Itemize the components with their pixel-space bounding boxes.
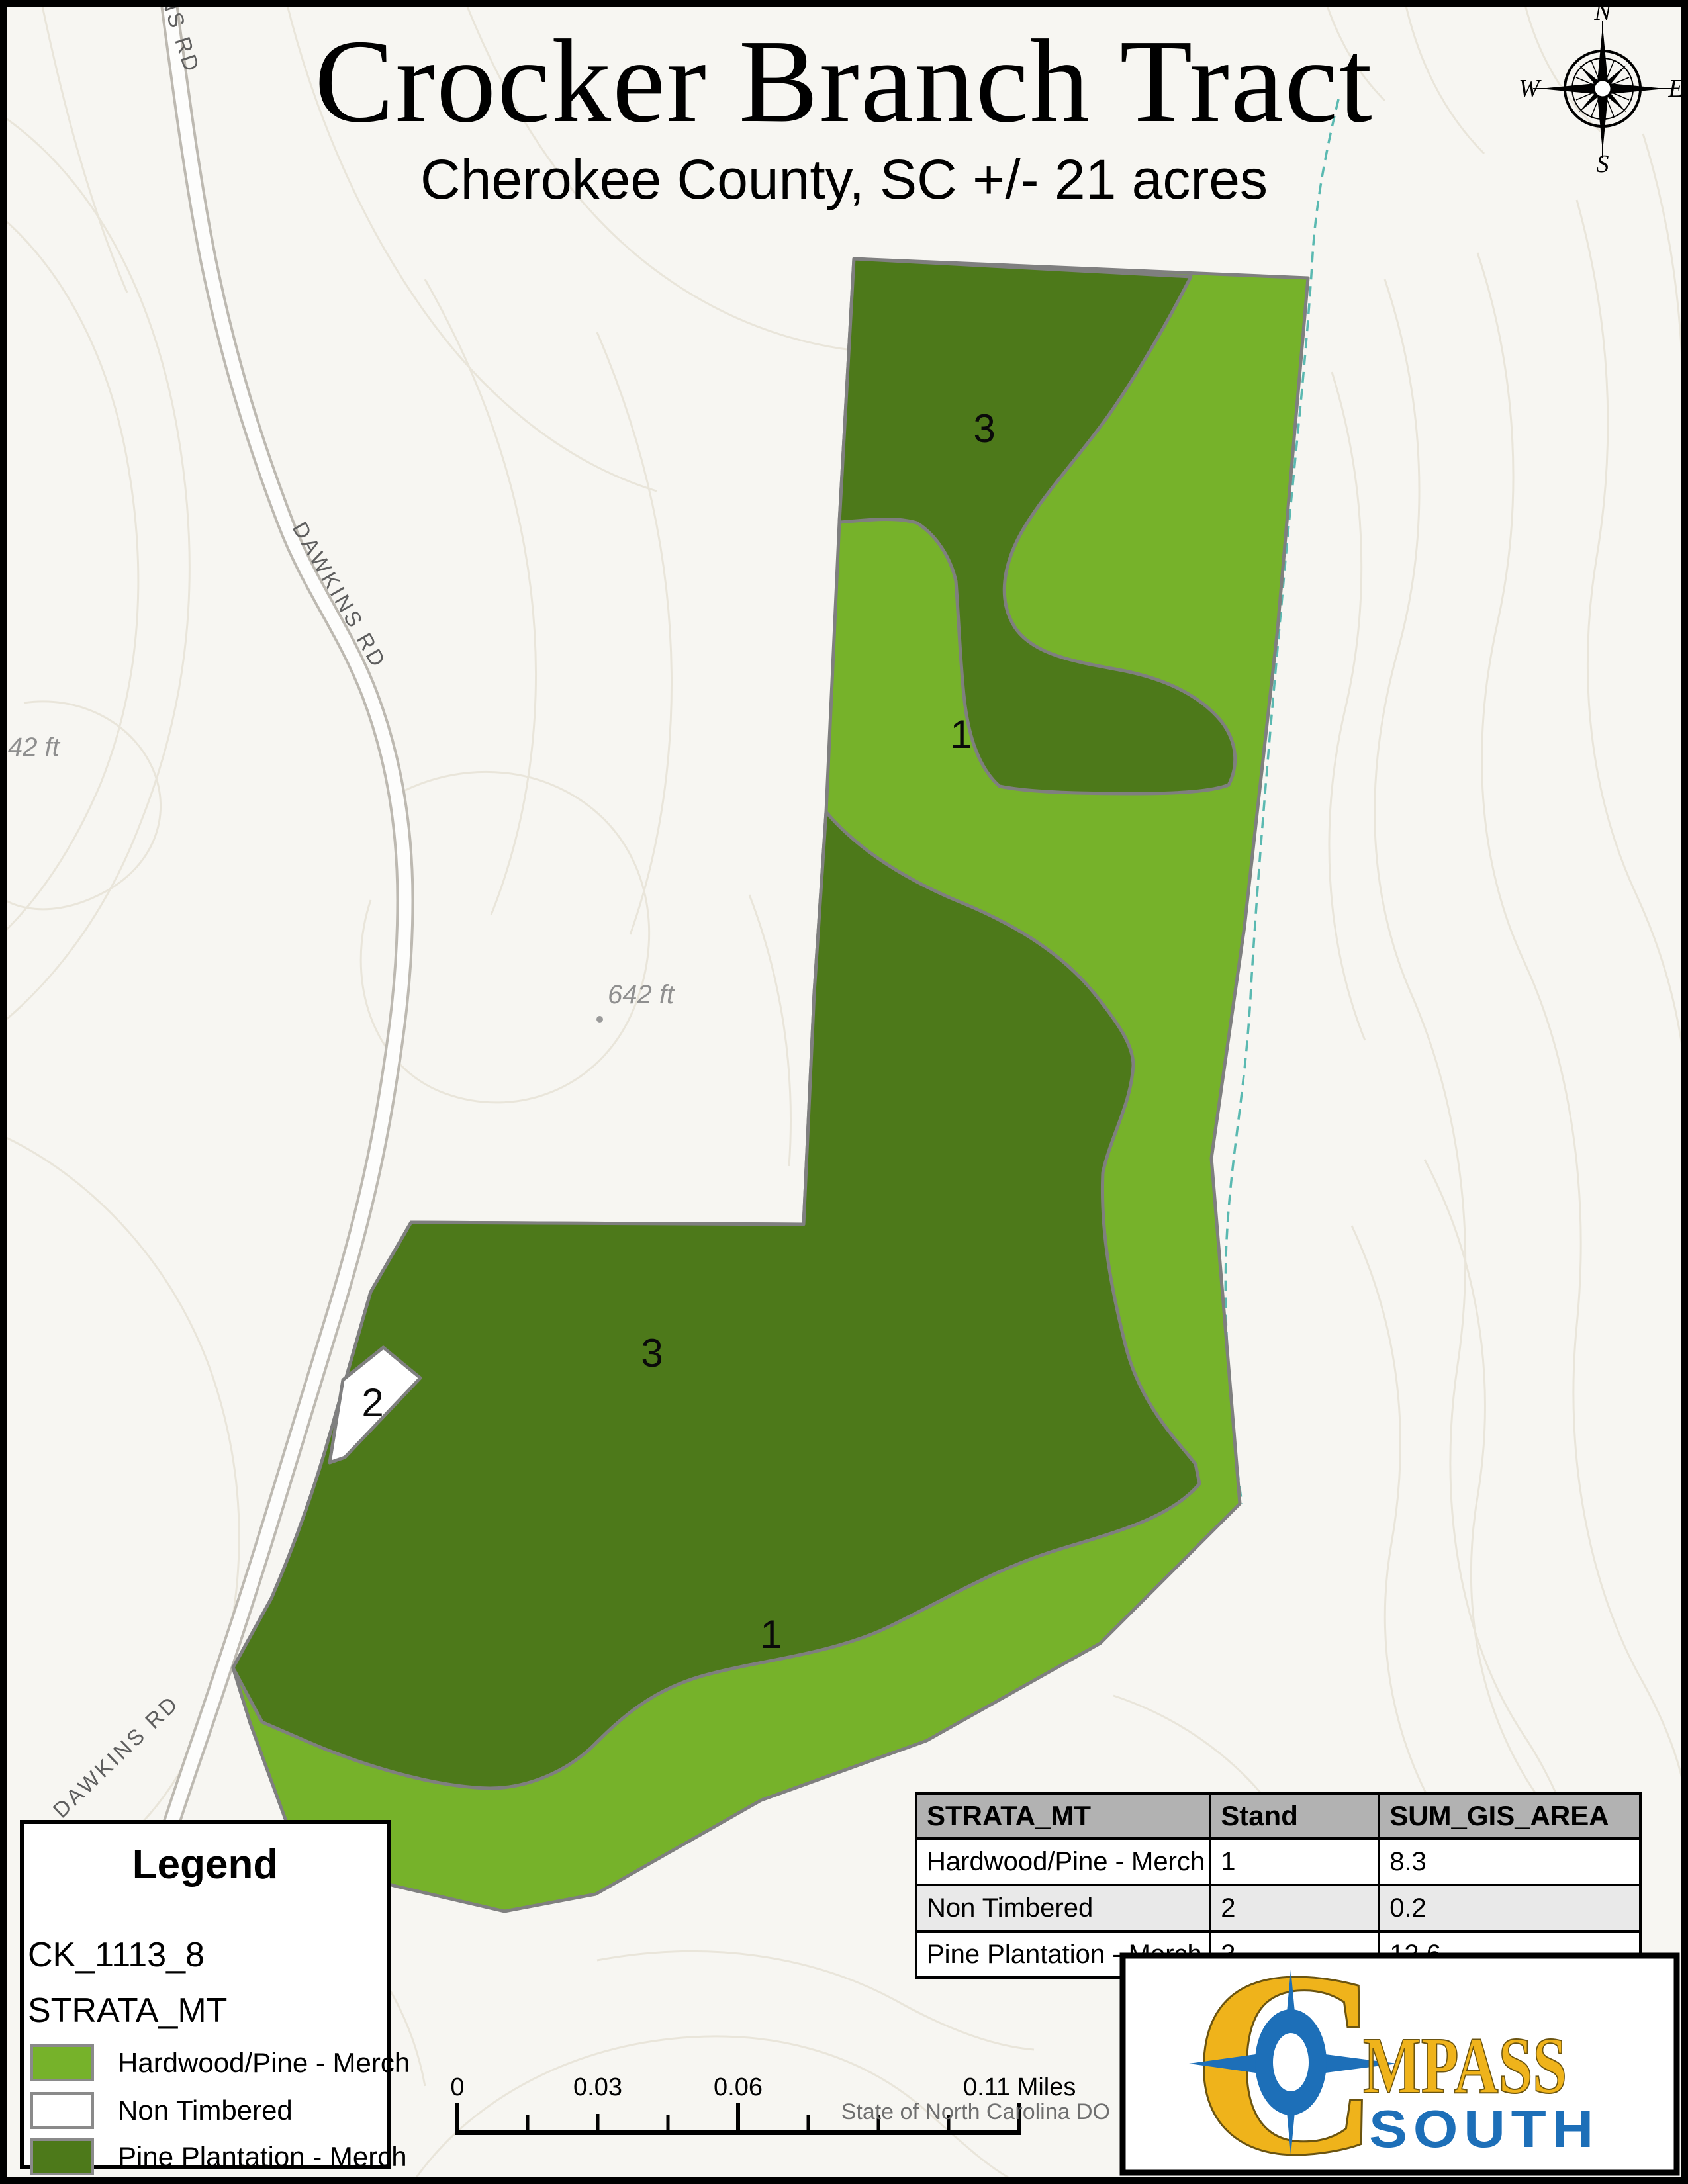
basemap-attribution: State of North Carolina DO	[779, 2099, 1110, 2125]
legend-swatch-non-timbered	[30, 2092, 94, 2129]
table-header-row: STRATA_MT Stand SUM_GIS_AREA	[916, 1794, 1640, 1839]
legend-swatch-pine-plantation	[30, 2138, 94, 2175]
legend-label-non-timbered: Non Timbered	[118, 2095, 293, 2126]
compass-letter-n: N	[1593, 4, 1613, 26]
table-row: Hardwood/Pine - Merch 1 8.3	[916, 1839, 1640, 1885]
page-subtitle: Cherokee County, SC +/- 21 acres	[0, 148, 1688, 212]
scalebar-label-006: 0.06	[714, 2073, 763, 2101]
compass-letter-w: W	[1520, 75, 1542, 103]
legend-title: Legend	[24, 1841, 387, 1888]
table-cell-strata: Non Timbered	[916, 1885, 1210, 1931]
page-title: Crocker Branch Tract	[0, 19, 1688, 144]
table-cell-area: 0.2	[1379, 1885, 1640, 1931]
legend-item-non-timbered: Non Timbered	[30, 2093, 293, 2128]
strata-area-table: STRATA_MT Stand SUM_GIS_AREA Hardwood/Pi…	[915, 1792, 1642, 1979]
table-cell-stand: 2	[1210, 1885, 1379, 1931]
scalebar-label-miles: 0.11 Miles	[963, 2073, 1076, 2101]
legend-swatch-hardwood-pine	[30, 2044, 94, 2081]
table-header-stand: Stand	[1210, 1794, 1379, 1839]
legend-label-hardwood-pine: Hardwood/Pine - Merch	[118, 2047, 410, 2079]
table-cell-strata: Hardwood/Pine - Merch	[916, 1839, 1210, 1885]
legend-panel: Legend CK_1113_8 STRATA_MT Hardwood/Pine…	[20, 1820, 391, 2169]
table-header-area: SUM_GIS_AREA	[1379, 1794, 1640, 1839]
table-cell-area: 8.3	[1379, 1839, 1640, 1885]
table-cell-stand: 1	[1210, 1839, 1379, 1885]
compass-rose: N E S W	[1520, 4, 1685, 175]
table-header-strata: STRATA_MT	[916, 1794, 1210, 1839]
legend-label-pine-plantation: Pine Plantation - Merch	[118, 2141, 407, 2173]
title-block: Crocker Branch Tract Cherokee County, SC…	[0, 0, 1688, 212]
logo-text-south: SOUTH	[1369, 2099, 1599, 2158]
legend-item-hardwood-pine: Hardwood/Pine - Merch	[30, 2045, 410, 2081]
legend-field-name: STRATA_MT	[28, 1991, 227, 2030]
compass-south-logo: C MPASS SOUTH	[1119, 1952, 1680, 2177]
scalebar-label-0: 0	[450, 2073, 464, 2101]
legend-item-pine-plantation: Pine Plantation - Merch	[30, 2139, 407, 2175]
table-row: Non Timbered 2 0.2	[916, 1885, 1640, 1931]
logo-text-mpass: MPASS	[1363, 2021, 1567, 2111]
legend-layer-name: CK_1113_8	[28, 1935, 205, 1975]
compass-letter-s: S	[1597, 150, 1609, 175]
compass-letter-e: E	[1667, 75, 1683, 103]
scalebar-label-003: 0.03	[573, 2073, 622, 2101]
